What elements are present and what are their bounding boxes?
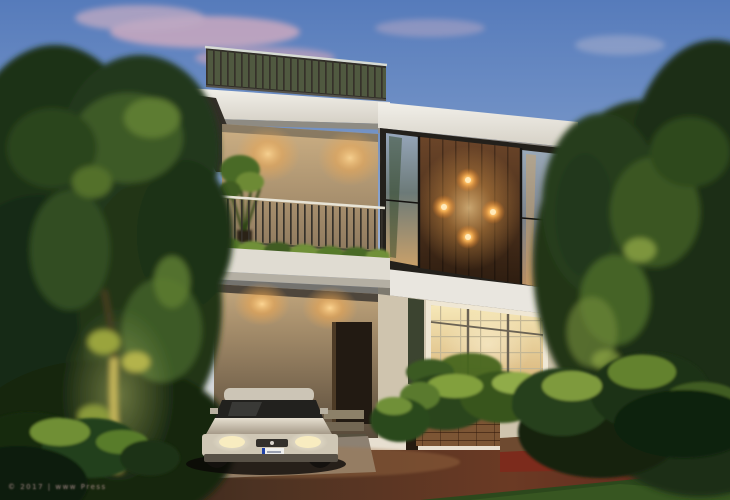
car-mirror-left: [210, 408, 218, 414]
wall-lamp: [465, 177, 471, 183]
car-bumper-lower: [204, 454, 338, 462]
entry-door: [332, 322, 372, 424]
downlight-glow: [318, 130, 382, 186]
upper-floor-balcony-wall: [214, 124, 390, 263]
car-headlight-left: [219, 436, 245, 448]
villa-dusk-render: © 2017 | www Press: [0, 0, 730, 500]
door-jamb-light: [332, 322, 336, 424]
cloud: [75, 5, 205, 31]
wall-lamp: [490, 209, 496, 215]
wall-lamp: [441, 204, 447, 210]
panel-glow: [415, 146, 523, 270]
windshield-reflection: [228, 402, 262, 416]
plate-characters: [267, 451, 281, 453]
scallop-light: [234, 282, 290, 326]
car-headlight-right: [295, 436, 321, 448]
scene-canvas: [0, 0, 730, 500]
watermark-text: © 2017 | www Press: [8, 483, 148, 491]
cloud: [375, 19, 485, 37]
car-emblem: [270, 441, 274, 445]
wall-lamp: [465, 234, 471, 240]
car-mirror-right: [320, 408, 328, 414]
car-roof: [224, 388, 314, 402]
cloud: [575, 35, 665, 55]
